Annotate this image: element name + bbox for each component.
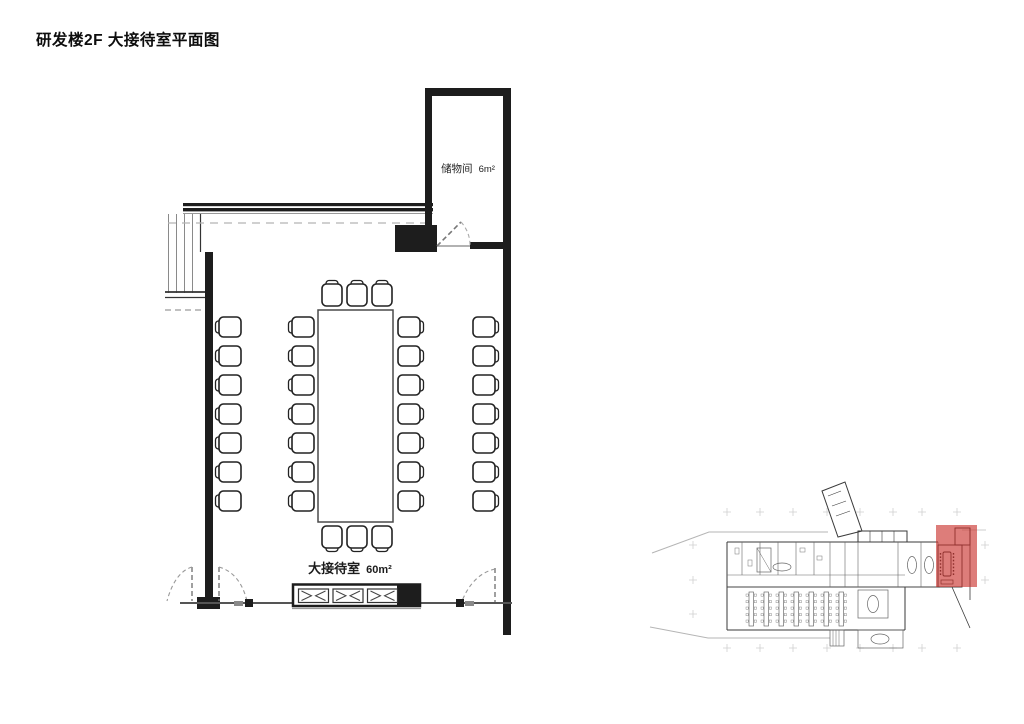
chair [473,375,499,395]
chair [322,526,342,552]
storage-room-label: 储物间 6m² [430,161,506,176]
chair [289,346,315,366]
chair [289,404,315,424]
chair [372,281,392,307]
floor-plan-drawing [0,0,1024,724]
chair [289,375,315,395]
chair [216,462,242,482]
inset-interior [727,542,940,648]
site-boundary-bottom [650,627,830,638]
chair [398,462,424,482]
inset-entrance-wing [822,482,862,537]
storage-room-area: 6m² [479,164,495,175]
chair [473,462,499,482]
chair [398,375,424,395]
storage-room-name: 储物间 [441,161,473,176]
storage-door [437,222,470,246]
chair [473,404,499,424]
chair [398,346,424,366]
chair [398,433,424,453]
chair [398,404,424,424]
sideboard [292,585,421,609]
chair [289,433,315,453]
chair [473,317,499,337]
inset-building-outline [727,528,970,630]
chair [289,317,315,337]
chair [216,404,242,424]
chair [289,491,315,511]
left-wall [205,252,213,602]
sideboard-cell [299,589,329,603]
chair [398,491,424,511]
sideboard-cell [333,589,363,603]
chair [473,491,499,511]
sideboard-solid-end [397,585,420,607]
chair [398,317,424,337]
reception-room-name: 大接待室 [308,558,360,577]
chair [289,462,315,482]
chair [216,317,242,337]
conference-table [318,310,393,522]
chair [216,433,242,453]
chair [322,281,342,307]
storage-bottom-wall [470,242,503,249]
inset-open-office-desks [746,592,847,626]
right-door [456,568,495,607]
floor-plan-page: 研发楼2F 大接待室平面图 [0,0,1024,724]
reception-highlight [936,525,977,587]
top-wall [183,203,433,206]
chair [347,281,367,307]
reception-room-label: 大接待室 60m² [270,558,430,577]
chair [216,375,242,395]
chair [473,433,499,453]
storage-left-wall [425,88,432,228]
chair [347,526,367,552]
wall-pier [395,225,437,252]
chair [216,491,242,511]
reception-room-area: 60m² [366,564,392,576]
storage-top-wall [425,88,511,96]
chair [216,346,242,366]
chair [372,526,392,552]
sideboard-cell [368,589,398,603]
overview-inset [650,482,989,652]
chair [473,346,499,366]
